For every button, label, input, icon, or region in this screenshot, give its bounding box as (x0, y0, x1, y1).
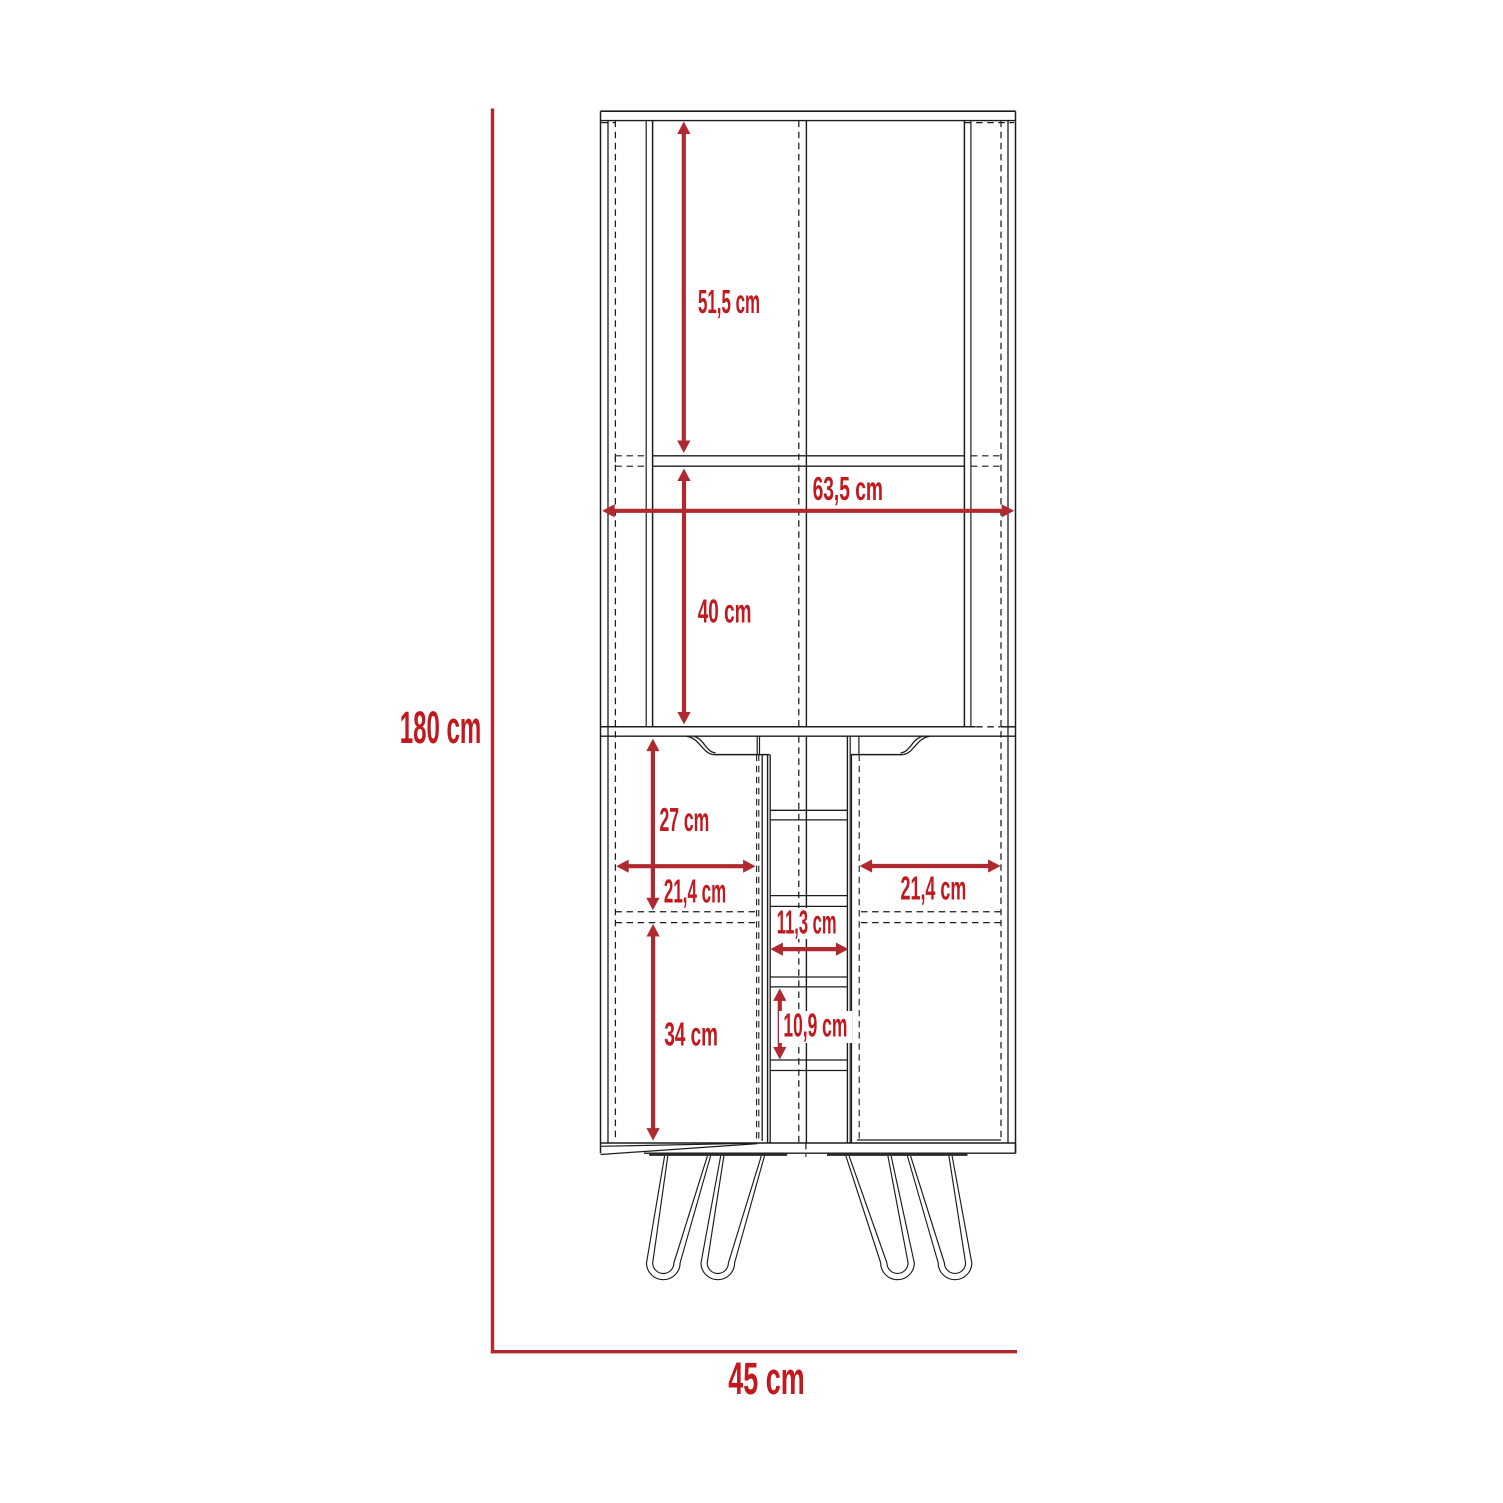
svg-text:45 cm: 45 cm (728, 1353, 805, 1404)
svg-text:21,4 cm: 21,4 cm (664, 872, 726, 909)
svg-text:10,9 cm: 10,9 cm (783, 1006, 847, 1043)
svg-text:11,3 cm: 11,3 cm (777, 903, 837, 940)
svg-text:180 cm: 180 cm (400, 702, 482, 753)
svg-text:27 cm: 27 cm (660, 801, 710, 838)
svg-text:63,5 cm: 63,5 cm (813, 470, 883, 507)
svg-text:40 cm: 40 cm (698, 592, 752, 629)
svg-text:21,4 cm: 21,4 cm (901, 870, 967, 907)
svg-text:51,5 cm: 51,5 cm (698, 283, 760, 320)
svg-text:34 cm: 34 cm (664, 1015, 718, 1052)
